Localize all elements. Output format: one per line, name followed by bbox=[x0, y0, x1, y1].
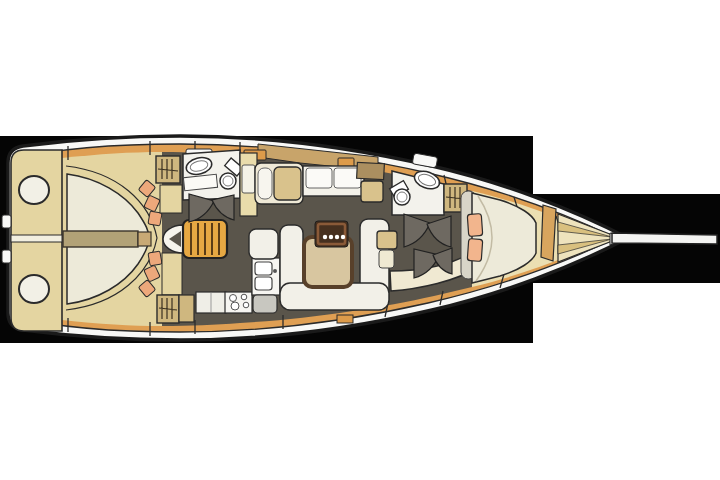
aft-cabin-step bbox=[138, 232, 151, 246]
chart-seat bbox=[377, 231, 397, 249]
stern-hatch-port bbox=[19, 176, 49, 204]
locker-aft-starboard bbox=[179, 295, 194, 322]
deck-hatch-bottom bbox=[337, 315, 353, 323]
aft-berth-pillow-4 bbox=[148, 251, 162, 266]
transom-step-lower bbox=[2, 250, 11, 263]
floorplan-svg bbox=[0, 0, 720, 480]
galley-fridge bbox=[253, 295, 277, 313]
galley-sink-left bbox=[255, 262, 272, 275]
saloon-sideboard-top bbox=[242, 165, 255, 193]
stern-divider bbox=[11, 235, 62, 242]
cabinet-aft-port bbox=[160, 185, 182, 213]
chart-locker bbox=[379, 250, 394, 268]
stern-hatch-starboard bbox=[19, 275, 49, 303]
yacht-layout-canvas bbox=[0, 0, 720, 480]
saloon-armchair-cushion bbox=[274, 167, 301, 200]
bowsprit bbox=[612, 233, 717, 244]
settee-cushion-left bbox=[306, 168, 332, 188]
forward-head-toilet-seat bbox=[397, 192, 407, 202]
galley-faucet bbox=[273, 269, 277, 273]
vberth-foot-locker bbox=[541, 205, 556, 261]
cabinet-aft-starboard bbox=[162, 253, 182, 295]
nav-panel bbox=[357, 162, 385, 179]
saloon-bench bbox=[249, 229, 278, 259]
saloon-armchair-pad bbox=[258, 168, 272, 199]
aft-head-counter bbox=[183, 174, 217, 190]
transom-step-upper bbox=[2, 215, 11, 228]
galley-sink-right bbox=[255, 277, 272, 290]
vberth-pillow-starboard bbox=[467, 239, 483, 262]
aft-cabin-walkway bbox=[63, 231, 138, 247]
vberth-pillow-port bbox=[467, 214, 483, 237]
nav-seat bbox=[361, 181, 383, 202]
aft-head-toilet-seat bbox=[223, 176, 233, 186]
